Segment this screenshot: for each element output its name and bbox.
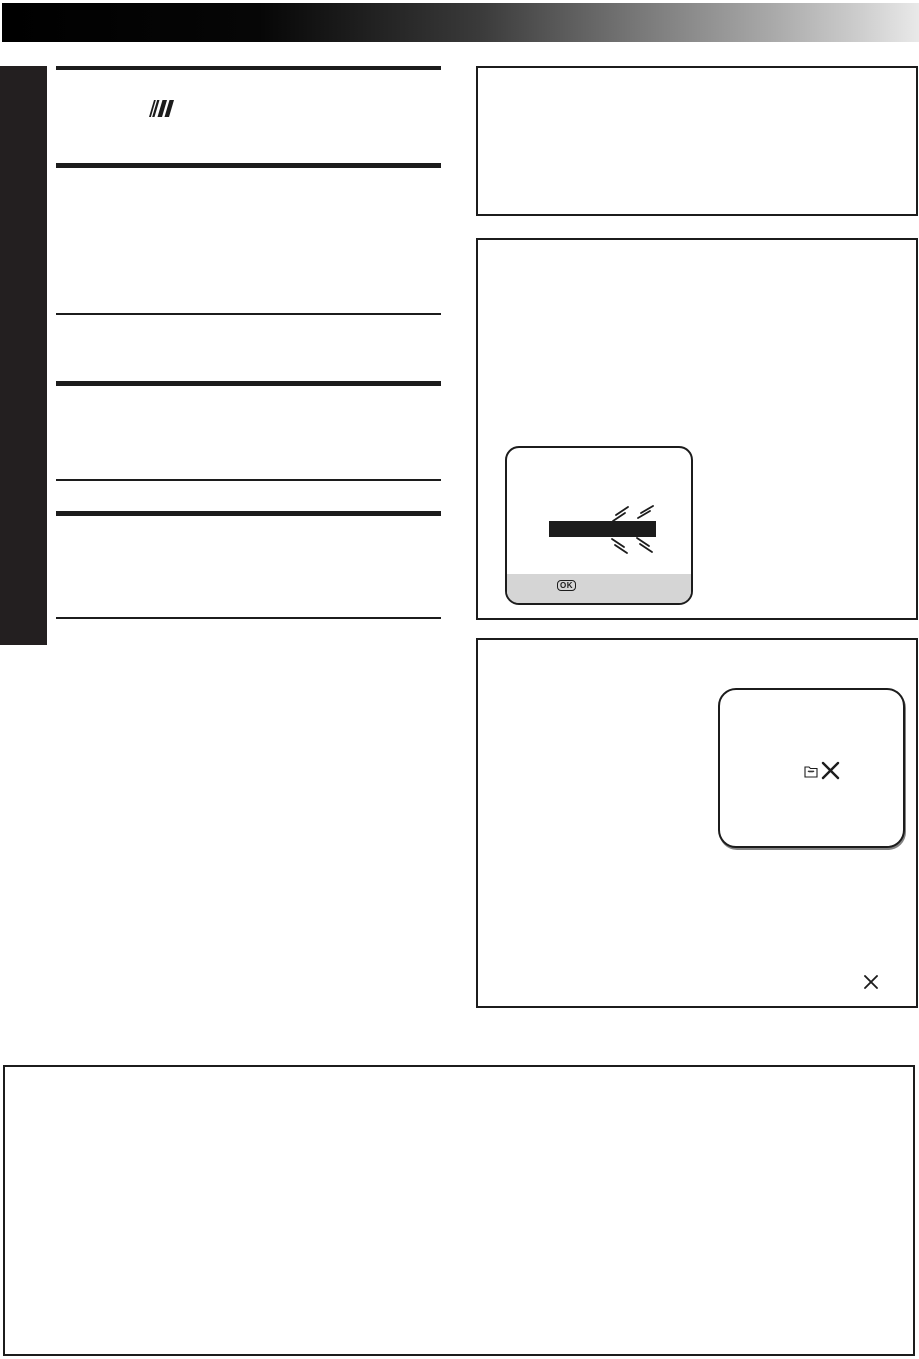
section-rule-6 (56, 511, 441, 516)
section-rule-7 (56, 617, 441, 619)
section-rule-2 (56, 163, 441, 168)
chapter-side-tab (0, 66, 47, 645)
section-rule-3 (56, 313, 441, 315)
illustration-frame-1 (476, 66, 918, 216)
x-mark-icon (821, 761, 840, 780)
section-rule-1 (56, 66, 441, 70)
italic-slashes-icon (147, 100, 174, 117)
open-folder-icon (804, 765, 818, 778)
footnote-box (3, 1065, 915, 1356)
section-rule-4 (56, 381, 441, 386)
ok-button-badge: OK (557, 580, 576, 591)
button-strip: OK (507, 574, 691, 603)
manual-page: OK (0, 0, 919, 1359)
corner-x-mark-icon (863, 974, 879, 990)
lcd-screen-mockup: OK (505, 446, 693, 605)
header-gradient-bar (2, 3, 919, 42)
section-rule-5 (56, 479, 441, 481)
